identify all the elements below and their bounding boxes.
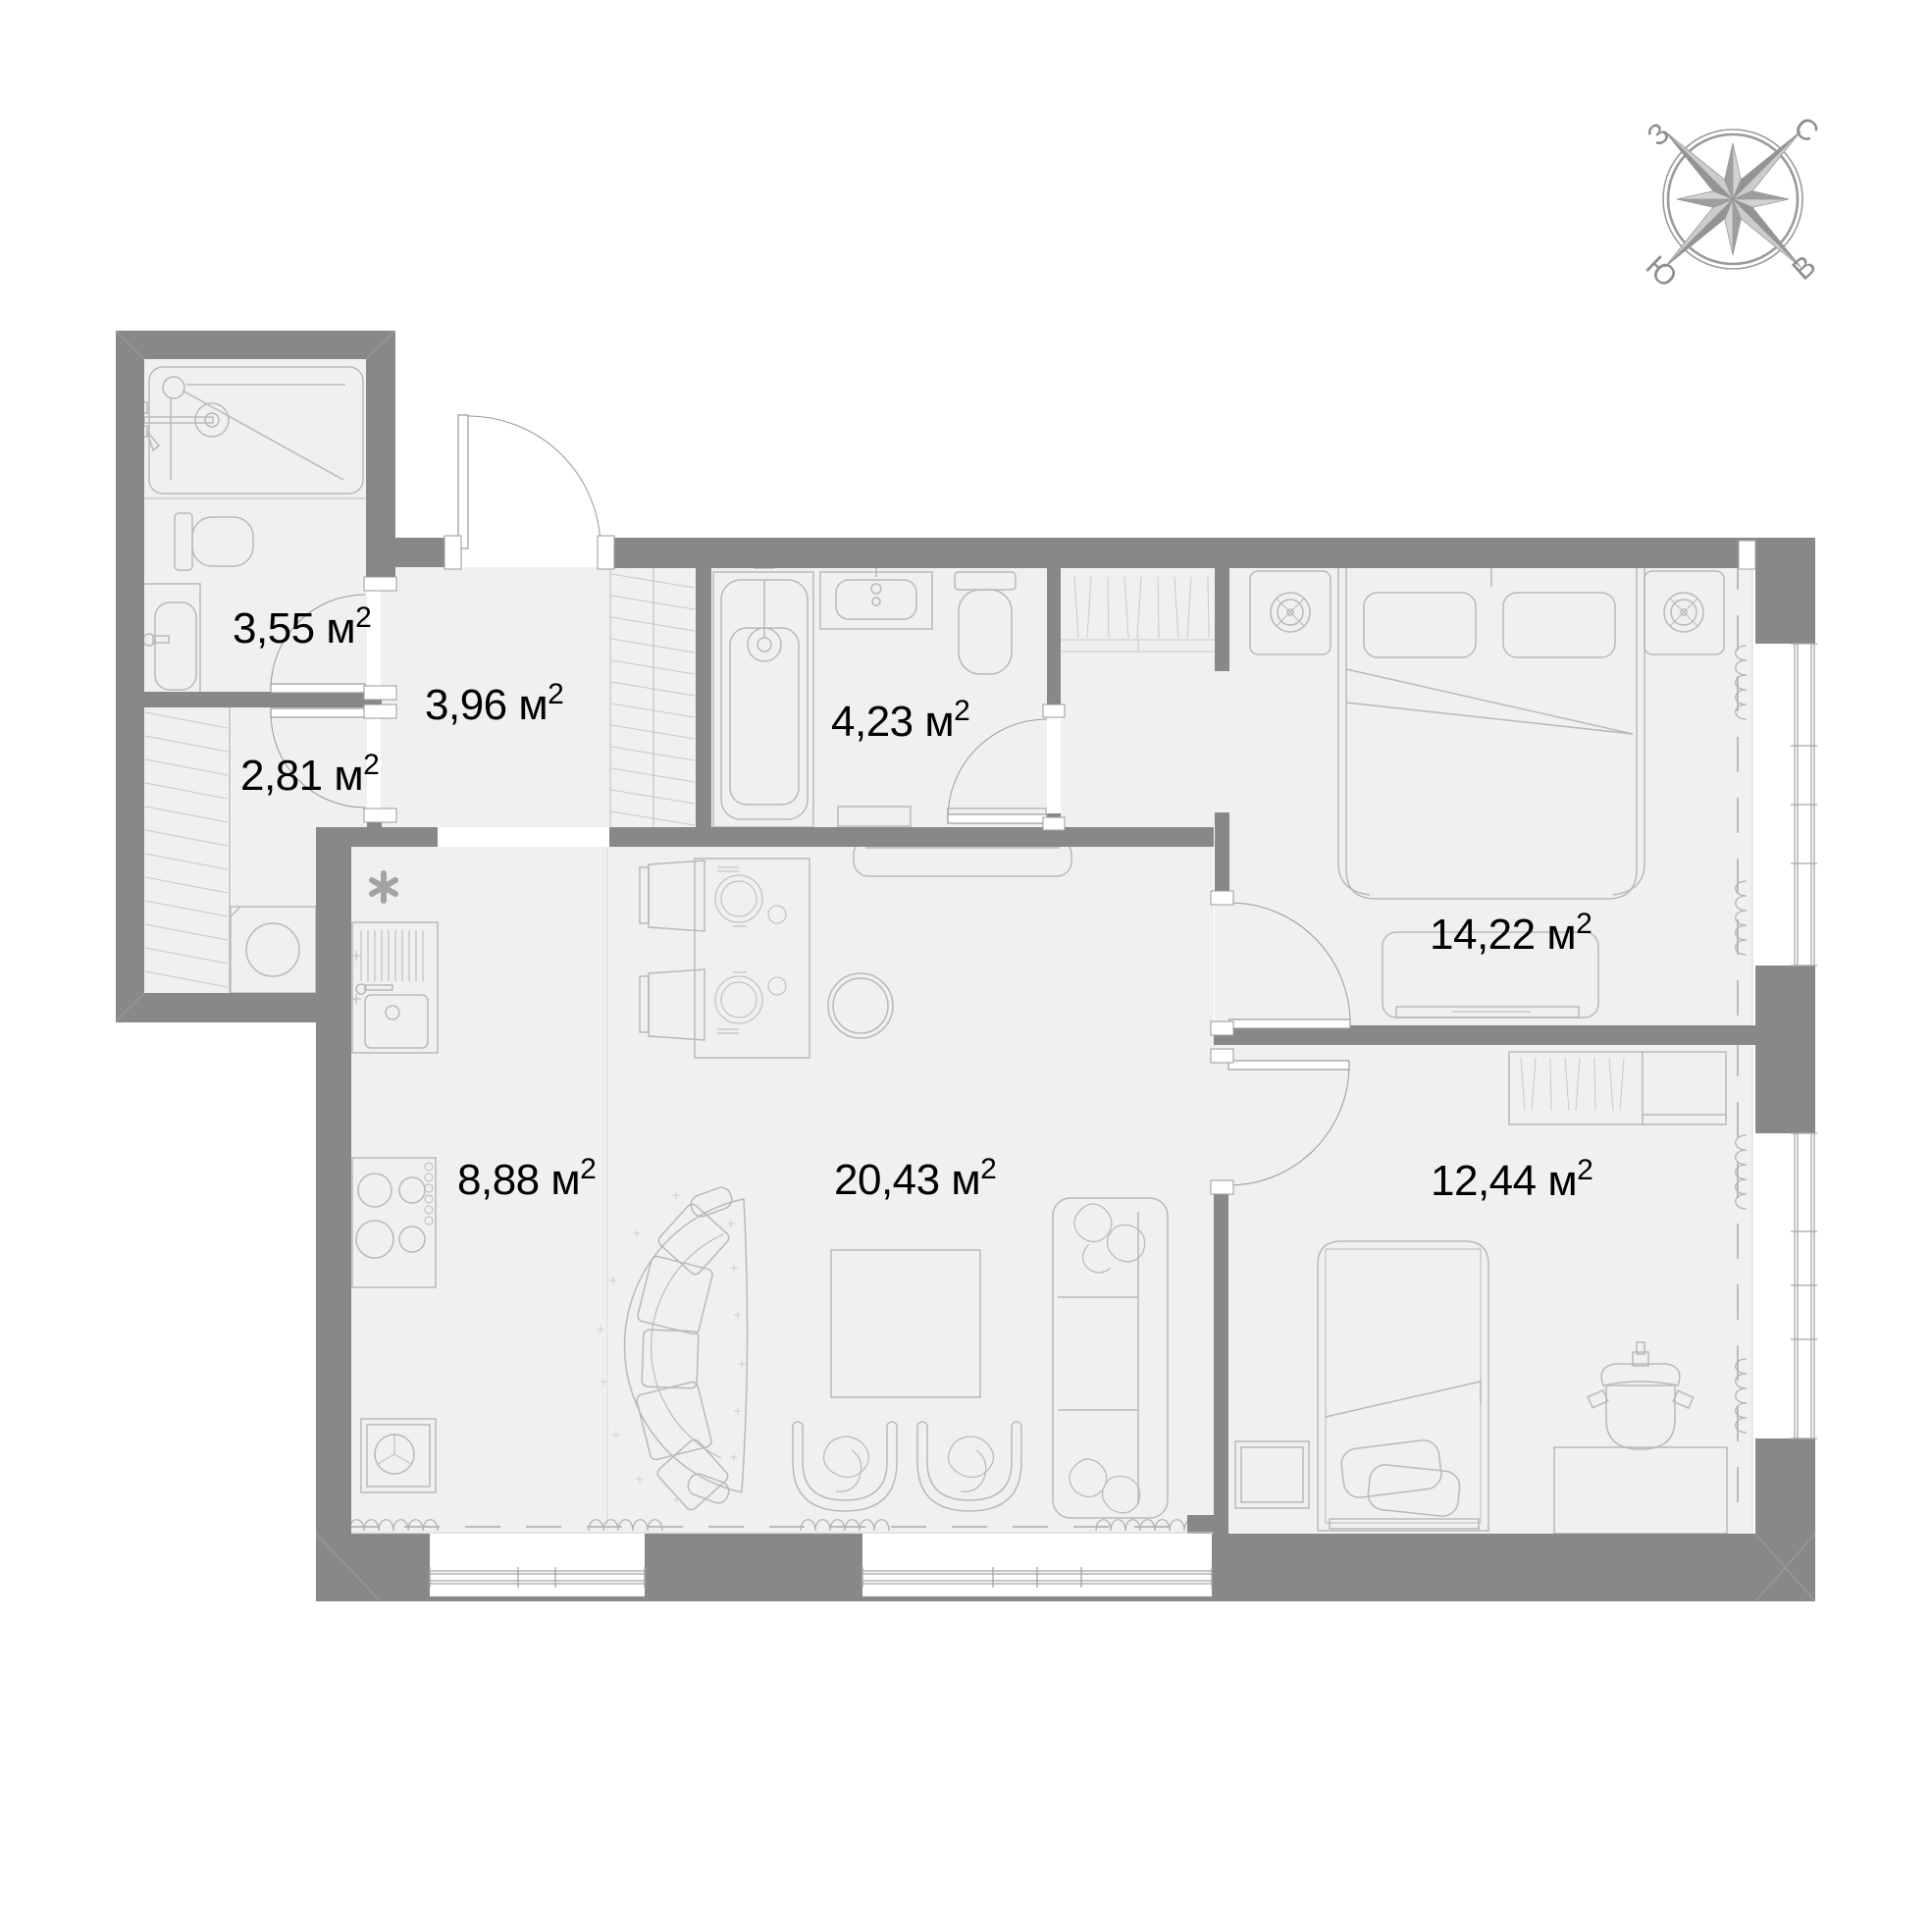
svg-text:12,44 м2: 12,44 м2 (1431, 1154, 1593, 1205)
svg-text:3,55 м2: 3,55 м2 (233, 601, 371, 653)
svg-text:3,96 м2: 3,96 м2 (425, 678, 563, 729)
svg-text:14,22 м2: 14,22 м2 (1430, 908, 1592, 959)
svg-text:8,88 м2: 8,88 м2 (457, 1153, 596, 1204)
svg-text:4,23 м2: 4,23 м2 (831, 695, 969, 746)
svg-text:2,81 м2: 2,81 м2 (240, 749, 379, 800)
svg-text:20,43 м2: 20,43 м2 (834, 1153, 996, 1204)
